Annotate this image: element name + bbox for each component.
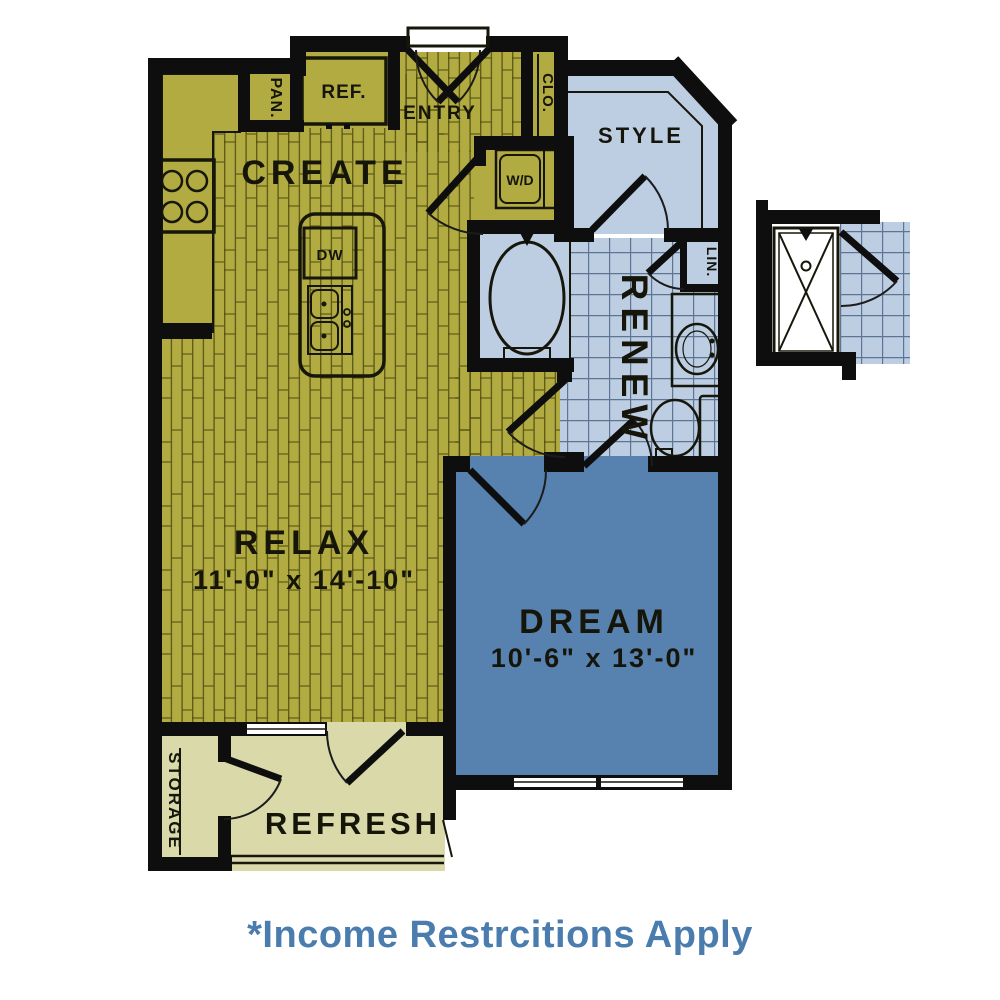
- plank-pattern: [455, 368, 560, 463]
- floor-plan-drawing: CREATE RELAX 11'-0" x 14'-10" DREAM 10'-…: [0, 0, 1000, 1000]
- room-dims-relax: 11'-0" x 14'-10": [193, 565, 415, 595]
- relax-balcony-window: [246, 723, 326, 735]
- room-label-create: CREATE: [241, 154, 408, 192]
- room-label-entry: ENTRY: [403, 103, 477, 124]
- fixture-label-linen: LIN.: [704, 247, 720, 277]
- fixture-label-refrigerator: REF.: [321, 82, 366, 103]
- room-label-relax: RELAX: [234, 524, 374, 562]
- room-label-refresh: REFRESH: [265, 806, 441, 841]
- fixture-label-dishwasher: DW: [317, 247, 344, 264]
- room-dims-dream: 10'-6" x 13'-0": [491, 643, 698, 673]
- income-restrictions-caption: *Income Restrcitions Apply: [0, 914, 1000, 957]
- entry-door-mat: [408, 28, 488, 46]
- floor-refresh-balcony: [148, 722, 445, 871]
- dream-window-left: [513, 777, 597, 788]
- room-label-dream: DREAM: [519, 603, 669, 641]
- shower-icon: [774, 228, 838, 356]
- fixture-label-pantry: PAN.: [267, 77, 284, 118]
- room-label-style: STYLE: [598, 123, 684, 148]
- floor-plan-page: CREATE RELAX 11'-0" x 14'-10" DREAM 10'-…: [0, 0, 1000, 1000]
- room-label-storage: STORAGE: [165, 752, 184, 850]
- room-label-renew: RENEW: [614, 274, 655, 447]
- fixture-label-coat-closet: CLO.: [539, 73, 556, 113]
- fixture-label-washer-dryer: W/D: [506, 172, 533, 188]
- dream-window-right: [600, 777, 684, 788]
